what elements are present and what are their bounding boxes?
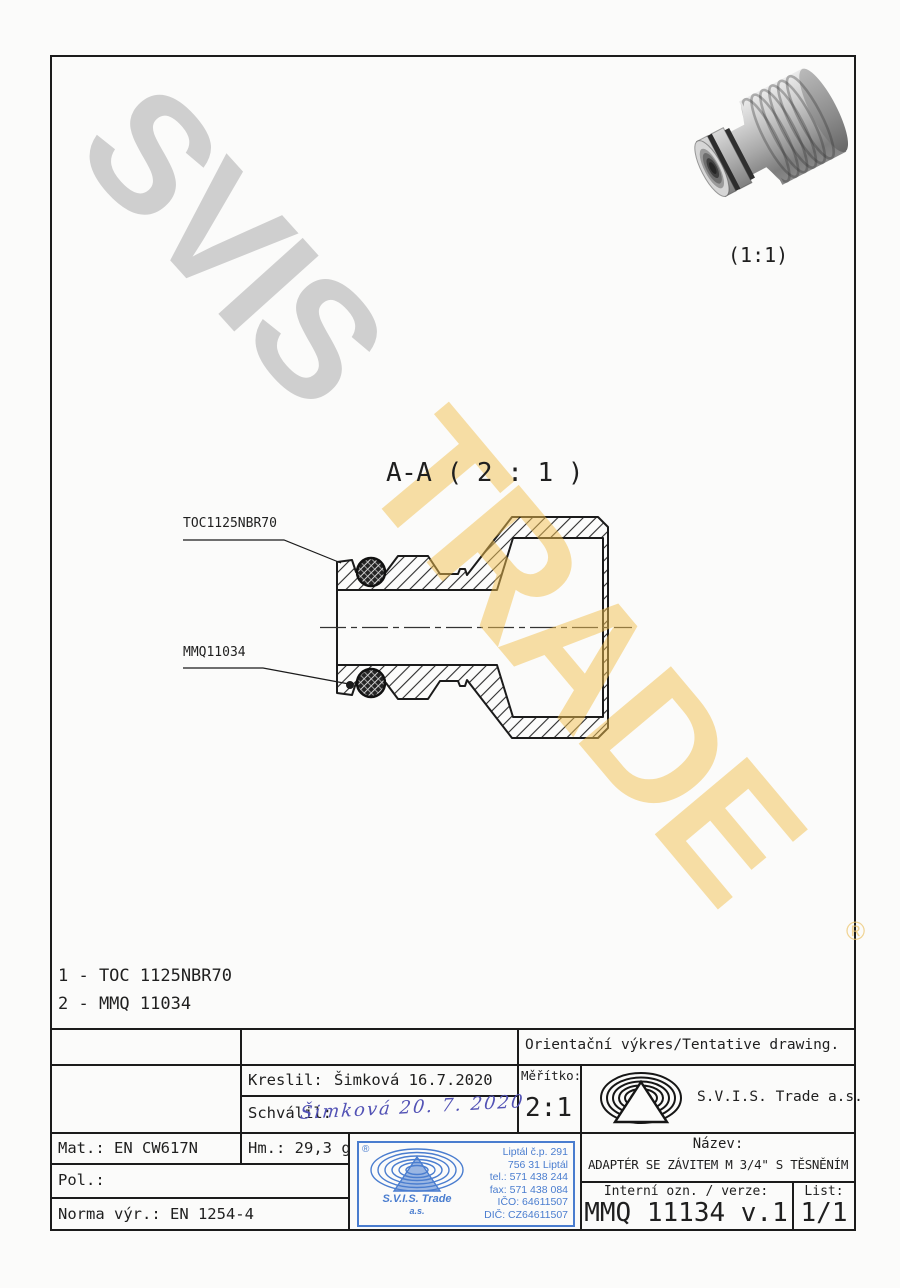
tentative-drawing-note: Orientační výkres/Tentative drawing. xyxy=(525,1037,839,1053)
stamp-address-line: 756 31 Liptál xyxy=(484,1159,568,1172)
body-part-label: MMQ11034 xyxy=(183,645,246,660)
titleblock-line xyxy=(240,1028,242,1165)
stamp-address-line: tel.: 571 438 244 xyxy=(484,1171,568,1184)
material-field: Mat.: EN CW617N xyxy=(58,1139,198,1157)
drawing-sheet: SVIS TRADE ® xyxy=(0,0,900,1288)
oring-top xyxy=(357,558,385,586)
titleblock-line xyxy=(50,1028,856,1030)
leader-mmq-dot xyxy=(346,681,354,689)
part-3d-render xyxy=(681,63,857,215)
position-field: Pol.: xyxy=(58,1171,105,1189)
preview-scale-label: (1:1) xyxy=(728,243,788,267)
nazev-label: Název: xyxy=(580,1136,856,1152)
stamp-address-line: IČO: 64611507 xyxy=(484,1196,568,1209)
kreslil-value: Šimková 16.7.2020 xyxy=(334,1071,493,1089)
nazev-value: ADAPTÉR SE ZÁVITEM M 3/4" S TĚSNĚNÍM xyxy=(580,1157,856,1172)
titleblock-line xyxy=(50,1064,856,1066)
section-view xyxy=(183,517,632,738)
stamp-address-line: DIČ: CZ64611507 xyxy=(484,1209,568,1222)
stamp-logo-icon xyxy=(365,1147,469,1193)
stamp-address-line: Liptál č.p. 291 xyxy=(484,1146,568,1159)
list-value: 1/1 xyxy=(792,1198,856,1228)
stamp-company-line1: S.V.I.S. Trade xyxy=(369,1193,465,1205)
watermark-registered-icon: ® xyxy=(846,916,865,947)
stamp-address-block: Liptál č.p. 291 756 31 Liptál tel.: 571 … xyxy=(484,1146,568,1221)
kreslil-label: Kreslil: xyxy=(248,1071,323,1089)
titleblock-line xyxy=(50,1132,856,1134)
parts-list-item-1: 1 - TOC 1125NBR70 xyxy=(58,966,232,986)
titleblock-line xyxy=(50,1163,348,1165)
norm-field: Norma výr.: EN 1254-4 xyxy=(58,1205,254,1223)
oring-part-label: TOC1125NBR70 xyxy=(183,516,277,531)
list-label: List: xyxy=(792,1184,856,1199)
meritko-value: 2:1 xyxy=(517,1093,580,1123)
leader-toc xyxy=(183,540,341,563)
section-title: A-A ( 2 : 1 ) xyxy=(386,458,583,488)
titleblock-line xyxy=(50,1197,348,1199)
interni-label: Interní ozn. / verze: xyxy=(580,1184,792,1199)
stamp-address-line: fax: 571 438 084 xyxy=(484,1184,568,1197)
svis-logo-icon xyxy=(601,1073,681,1123)
oring-bottom xyxy=(357,669,385,697)
weight-field: Hm.: 29,3 g xyxy=(248,1139,351,1157)
meritko-label: Měřítko: xyxy=(521,1068,581,1083)
parts-list-item-2: 2 - MMQ 11034 xyxy=(58,994,191,1014)
company-name: S.V.I.S. Trade a.s. xyxy=(697,1089,863,1105)
titleblock-line xyxy=(580,1181,856,1183)
leader-mmq xyxy=(183,668,349,684)
stamp-company-line2: a.s. xyxy=(369,1206,465,1216)
interni-value: MMQ 11134 v.1 xyxy=(580,1198,792,1228)
company-stamp: ® S.V.I.S. Trade a.s. Liptál č.p. 291 75… xyxy=(357,1141,575,1227)
